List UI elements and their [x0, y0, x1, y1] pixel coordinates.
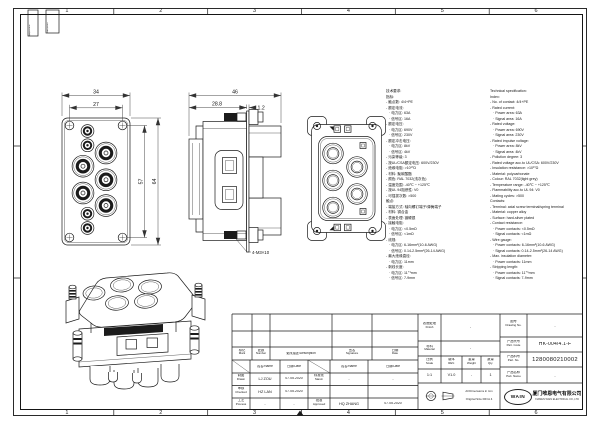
dim-front-height-inner: 57 — [139, 179, 145, 185]
tb-material-label: 材料Material — [418, 345, 441, 352]
tb-finish-value: - — [441, 325, 500, 329]
tb-qty-value: 1 — [481, 373, 500, 377]
tb-description-header: 更改描述/Description — [270, 352, 332, 356]
rear-view — [308, 117, 386, 241]
tb-checked-name: HZ LAN — [250, 390, 280, 394]
tb-material-value: - — [441, 346, 500, 350]
screw-note-label: 4-M3×10 — [252, 250, 270, 255]
tb-dims-note-1: All Dimensions in mm — [457, 389, 501, 393]
tb-signature-header: 签名Signature — [332, 349, 372, 356]
tb-name-subheader: 姓名/Name — [250, 365, 280, 369]
dim-side-depth: 28.8 — [212, 102, 222, 108]
tb-part-code-label: 产品代号Part. Code — [500, 340, 527, 347]
side-view: 46 28.8 1.2 4-M3×10 — [189, 90, 281, 255]
tb-drawing-no-value: - — [527, 324, 583, 328]
tb-part-name-label: 产品名称Part. Name — [500, 371, 527, 378]
tb-rev-label: 版本REV. — [441, 358, 462, 365]
tb-rev-value: V1.0 — [441, 373, 462, 377]
tb-date-subheader: 日期/Date — [280, 365, 308, 369]
tb-stand-name: - — [330, 377, 368, 381]
tb-part-no-value: 1280080210002 — [527, 357, 583, 363]
iso-view-3d — [66, 273, 205, 389]
tb-checked-label: 审核Checked — [232, 387, 250, 394]
tb-dims-note-2: Original Size DIN A 4 — [457, 397, 501, 401]
iso-left-flange — [66, 285, 82, 361]
tb-scale-value: 1:1 — [418, 373, 441, 377]
tb-drawn-label: 制图Drawn — [232, 374, 250, 381]
first-angle-projection-icon — [426, 391, 455, 400]
tb-stand-date: - — [368, 377, 418, 381]
dim-front-width-outer: 34 — [93, 90, 99, 96]
tb-qty-label: 数量Qty. — [481, 358, 500, 365]
dim-front-height-outer: 64 — [152, 179, 158, 185]
mounting-flange — [247, 111, 249, 252]
tb-scale-label: 比例Scale — [418, 358, 441, 365]
tb-approved-date: 07.05.2020 — [368, 402, 418, 406]
dim-front-width-inner: 27 — [93, 102, 99, 108]
tb-weight-value: - — [462, 373, 481, 377]
company-logo: WAIN — [504, 389, 532, 405]
tb-date-header: 日期Date — [372, 349, 418, 356]
tb-number-header: 处数Number — [252, 349, 270, 356]
centering-mark — [297, 411, 304, 416]
tb-process-label: 工艺Process — [232, 399, 250, 406]
tb-date-subheader-2: 日期/Date — [368, 365, 418, 369]
tb-drawn-name: LJ ZOU — [250, 377, 280, 381]
tb-drawing-no-label: 图号Drawing No. — [500, 320, 527, 327]
tb-approved-name: HQ ZHANG — [330, 402, 368, 406]
iso-contact-barrels — [90, 364, 179, 389]
spec-text-chinese: 技术要求:指标:- 触点数: 4/4+PE- 额定电流: · 电力区: 63A … — [386, 89, 486, 282]
drawing-sheet: 1 2 3 4 5 6 1 2 3 4 5 6 拟制/Date 更改/Rev. — [0, 0, 600, 424]
front-view: 34 27 57 64 — [62, 90, 161, 245]
dim-side-width: 46 — [232, 90, 238, 96]
tb-process-date: - — [280, 402, 308, 406]
company-name-en: XIAMEN WAIN ELECTRICAL CO.,LTD — [531, 398, 583, 401]
tb-stand-label: 标准化Stand. — [308, 374, 330, 381]
company-name-cn: 厦门唯恩电气有限公司 — [531, 390, 583, 397]
tb-name-subheader-2: 姓名/Name — [330, 365, 368, 369]
tb-part-name-value: - — [527, 374, 583, 378]
tb-checked-date: 07.05.2020 — [280, 390, 308, 394]
tb-part-no-label: 产品料号Part. No. — [500, 355, 527, 362]
tb-process-name: - — [250, 402, 280, 406]
tb-drawn-date: 07.05.2020 — [280, 377, 308, 381]
tb-weight-label: 重量Weight — [462, 358, 481, 365]
tb-mark-header: 标记Mark — [232, 349, 252, 356]
spec-text-english: Technical specification:Index:- No. of c… — [490, 89, 586, 282]
tb-part-code-value: HK-004/4.1-F — [527, 342, 583, 348]
tb-finish-label: 表面处理Finish — [418, 322, 441, 329]
dim-side-flange: 1.2 — [258, 106, 265, 112]
tb-approved-label: 批准Approved — [308, 399, 330, 406]
